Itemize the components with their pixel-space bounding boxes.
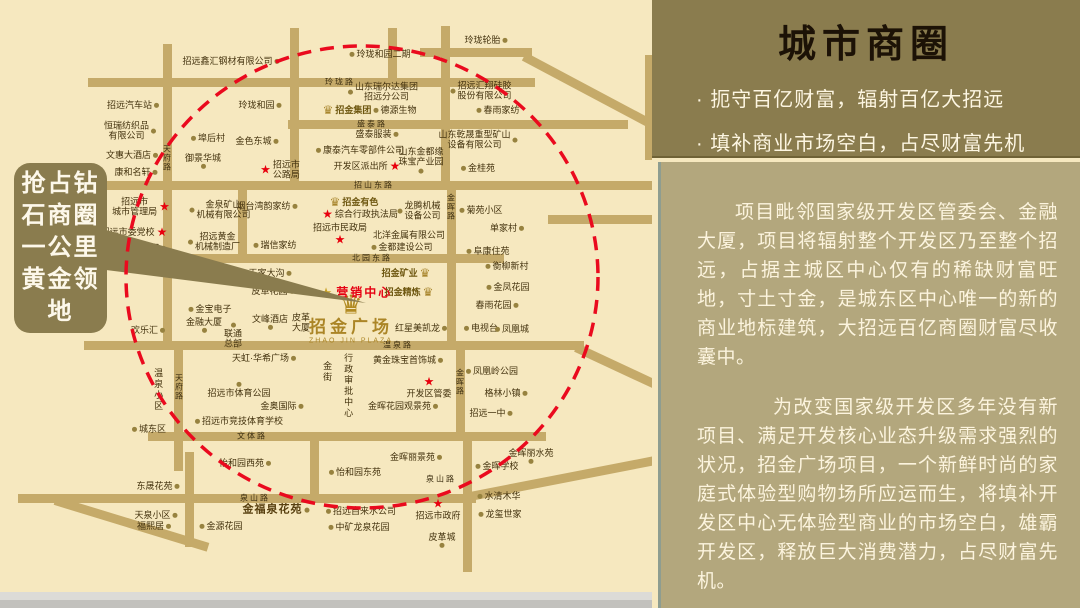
map-poi: 德源生物 (373, 105, 416, 115)
map-poi: 御景华城 (185, 153, 221, 169)
poi-dot-icon (519, 226, 524, 231)
map-poi-label: 招远市民政局 (313, 222, 367, 232)
map-poi: 金福泉花苑 (243, 504, 310, 517)
map-poi-label: 金桂苑 (468, 163, 495, 173)
map-road (574, 343, 652, 404)
map-poi-label: 招远市委党校 (101, 227, 155, 237)
map-poi: 水清木华 (477, 491, 520, 501)
red-star-icon: ★ (260, 164, 271, 176)
body-paragraph-1: 项目毗邻国家级开发区管委会、金融大厦，项目将辐射整个开发区乃至整个招远，占据主城… (697, 198, 1058, 372)
map-road (92, 254, 504, 263)
map-poi: 招远汇翔硅胶 股份有限公司 (450, 81, 511, 102)
map-poi-label: 招远市竞技体育学校 (202, 416, 283, 426)
map-poi-label: 招金有色 (342, 197, 378, 207)
map-poi-label: 康和名轩 (114, 167, 150, 177)
map-poi-label: 金源花园 (206, 521, 242, 531)
map-poi-label: 招远一中 (469, 408, 505, 418)
poi-dot-icon (153, 170, 158, 175)
map-poi: 山东乾晟重型矿山 设备有限公司 (438, 130, 517, 151)
map-poi-label: 龙腾机械 设备公司 (404, 201, 440, 222)
map-poi-label: 招远市 公路局 (273, 160, 300, 181)
map-poi: 金源花园 (199, 521, 242, 531)
map-poi-label: 康泰汽车零部件公司 (323, 145, 404, 155)
map-poi-label: 山东瑞尔达集团 招远分公司 (355, 82, 418, 103)
map-poi: 黄金珠宝首饰城 (373, 355, 443, 365)
map-poi-label: 电视台 (471, 323, 498, 333)
map-poi-label: 山东金都缘 珠宝产业园 (398, 147, 443, 168)
map-poi: 盛泰服装 (355, 129, 398, 139)
map-poi: 招金矿业♛ (382, 267, 431, 279)
map-poi-label: 衡柳新村 (492, 261, 528, 271)
poi-dot-icon (151, 129, 156, 134)
plaza-name: 招金广场 (309, 318, 393, 338)
road-name-label: 泉山路 (426, 474, 456, 485)
map-poi-label: 恒瑞纺织品 有限公司 (104, 121, 149, 142)
map-poi: 联通 总部 (224, 323, 242, 350)
map-poi-label: 皮革 大厦 (292, 313, 310, 334)
marketing-center-badge: ★ 营销中心 (320, 284, 393, 301)
poi-dot-icon (299, 404, 304, 409)
poi-dot-icon (230, 323, 235, 328)
road-name-label: 文体路 (237, 431, 267, 442)
map-poi-label: 王家大沟 (248, 268, 284, 278)
poi-dot-icon (267, 325, 272, 330)
map-poi: 城东区 (132, 424, 166, 434)
poi-dot-icon (495, 327, 500, 332)
map-poi: 招远市民政局★ (313, 222, 367, 245)
poi-dot-icon (508, 411, 513, 416)
map-poi-label: 格林小镇 (484, 388, 520, 398)
eagle-icon: ♛ (423, 286, 434, 298)
map-poi-label: 招远汽车站 (107, 100, 152, 110)
poi-dot-icon (459, 208, 464, 213)
map-poi-label: 埠后村 (198, 133, 225, 143)
map-poi-label: 阜康住苑 (473, 246, 509, 256)
poi-dot-icon (291, 356, 296, 361)
map-poi-label: 招远自来水公司 (333, 506, 396, 516)
poi-dot-icon (287, 271, 292, 276)
poi-dot-icon (503, 38, 508, 43)
map-poi: 金凤花园 (486, 282, 529, 292)
map-poi-label: 综合行政执法局 (335, 209, 398, 219)
map-poi: 玲珑和园 (238, 100, 281, 110)
callout-text: 抢占钻石商圈一公里黄金领地 (20, 168, 101, 328)
map-poi: 烟台湾韵家纺 (236, 201, 297, 211)
bullet-item-2: · 填补商业市场空白，占尽财富先机 (696, 127, 1080, 156)
map-poi-label: 天泉小区 (134, 510, 170, 520)
poi-dot-icon (523, 391, 528, 396)
map-poi: 怡和园西苑 (219, 458, 271, 468)
map-poi: 招远市竞技体育学校 (195, 416, 283, 426)
map-poi: 中矿龙泉花园 (328, 522, 389, 532)
poi-dot-icon (486, 285, 491, 290)
map-poi: ★综合行政执法局 (322, 208, 398, 220)
map-poi: 春雨家纺 (476, 105, 519, 115)
poi-dot-icon (394, 132, 399, 137)
poi-dot-icon (437, 455, 442, 460)
poi-dot-icon (166, 524, 171, 529)
map-poi-label: 欢乐汇 (131, 325, 158, 335)
map-poi: 御金府 (189, 266, 223, 276)
map-road (288, 120, 628, 129)
map-poi: 金色东城 (235, 136, 278, 146)
poi-dot-icon (200, 164, 205, 169)
map-poi-label: 金奥国际 (260, 401, 296, 411)
eagle-icon: ♛ (420, 267, 431, 279)
poi-dot-icon (466, 369, 471, 374)
map-poi-label: 御金都 (132, 243, 159, 253)
map-poi: 金街 (322, 361, 332, 383)
poi-dot-icon (439, 543, 444, 548)
map-poi: 北洋金属有限公司 (373, 230, 445, 240)
map-poi-label: 招远鑫汇钢材有限公司 (182, 56, 272, 66)
poi-dot-icon (397, 209, 402, 214)
map-poi-label: 水清木华 (484, 491, 520, 501)
poi-dot-icon (253, 243, 258, 248)
map-poi: 凤凰城 (495, 324, 529, 334)
map-poi: 金奥国际 (260, 401, 303, 411)
map-poi: 天泉小区 (134, 510, 177, 520)
red-star-icon: ★ (157, 226, 168, 238)
poi-dot-icon (277, 103, 282, 108)
map-poi-label: 文峰酒店 (252, 314, 288, 324)
map-poi-label: 招金集团 (335, 105, 371, 115)
map-poi-label: 玲珑和园 (238, 100, 274, 110)
panel-header: 城市商圈 · 扼守百亿财富，辐射百亿大招远 · 填补商业市场空白，占尽财富先机 (652, 0, 1080, 158)
map-poi: 天虹·华希广场 (232, 353, 296, 363)
map-poi: 招远市体育公园 (207, 382, 270, 398)
road-name-label: 金晖路 (455, 369, 466, 396)
poi-dot-icon (329, 470, 334, 475)
panel-body: 项目毗邻国家级开发区管委会、金融大厦，项目将辐射整个开发区乃至整个招远，占据主城… (658, 162, 1080, 608)
map-poi-label: 招远汇翔硅胶 股份有限公司 (457, 81, 511, 102)
map-poi-label: 盛泰服装 (355, 129, 391, 139)
map-poi-label: 金宝电子 (195, 304, 231, 314)
road-name-label: 北园东路 (352, 253, 392, 264)
map-poi: ♛招金集团 (323, 104, 372, 116)
map-poi-label: 招远市体育公园 (207, 388, 270, 398)
map-poi-label: 招远市政府 (415, 510, 460, 520)
red-star-icon: ★ (424, 375, 435, 387)
eagle-icon: ♛ (323, 104, 334, 116)
red-star-icon: ★ (390, 160, 401, 172)
map-poi: 春雨花园 (475, 300, 518, 310)
map-poi: 康和名轩 (114, 167, 157, 177)
map-poi-label: 凤凰城 (502, 324, 529, 334)
map-poi: 金晖花园观景苑 (368, 401, 438, 411)
poi-dot-icon (461, 166, 466, 171)
map-poi: 招远一中 (469, 408, 512, 418)
map-poi-label: 红星美凯龙 (395, 323, 440, 333)
map-poi: 康泰汽车零部件公司 (316, 145, 404, 155)
map-road (174, 341, 183, 471)
map-poi-label: 文惠大酒店 (106, 150, 151, 160)
poi-dot-icon (418, 168, 423, 173)
map-poi-label: 皮革花园 (251, 286, 287, 296)
poi-dot-icon (189, 208, 194, 213)
map-poi-label: 行政审批中心 (343, 353, 353, 419)
map-road (645, 55, 652, 160)
red-star-icon: ★ (159, 201, 170, 213)
map-poi-label: 联通 总部 (224, 329, 242, 350)
map-poi-label: 招远市 城市管理局 (112, 197, 157, 218)
map-poi-label: 北洋金属有限公司 (373, 230, 445, 240)
poi-dot-icon (450, 89, 455, 94)
map-poi: 皮革 大厦 (292, 313, 310, 334)
bottom-strip-dark (0, 600, 652, 608)
map-poi: 龙腾机械 设备公司 (397, 201, 440, 222)
map-poi: 行政审批中心 (343, 353, 353, 419)
map-poi: 埠后村 (191, 133, 225, 143)
road-name-label: 泉山路 (240, 493, 270, 504)
poi-dot-icon (485, 264, 490, 269)
map-poi-label: 瑞信家纺 (260, 240, 296, 250)
map-poi: 瑞信家纺 (253, 240, 296, 250)
poi-dot-icon (274, 139, 279, 144)
poi-dot-icon (153, 153, 158, 158)
map-road (548, 215, 652, 224)
map-poi: ♛招金有色 (330, 196, 379, 208)
map-poi-label: 德源生物 (380, 105, 416, 115)
slide: ♛ 招金广场 ZHAO JIN PLAZA ★ 营销中心 玲珑路盛泰路招山东路北… (0, 0, 1080, 608)
poi-dot-icon (477, 494, 482, 499)
road-name-label: 天府路 (174, 374, 185, 401)
map-poi: 欢乐汇 (131, 325, 165, 335)
poi-dot-icon (348, 90, 353, 95)
poi-dot-icon (476, 108, 481, 113)
map-poi: 招远汽车站 (107, 100, 159, 110)
map-poi-label: 黄金珠宝首饰城 (373, 355, 436, 365)
map-poi-label: 春雨花园 (475, 300, 511, 310)
road-name-label: 金晖路 (446, 194, 457, 221)
poi-dot-icon (191, 136, 196, 141)
map-poi: 怡和园东苑 (329, 467, 381, 477)
map-poi-label: 金晖花园观景苑 (368, 401, 431, 411)
map-poi: 温泉小区 (153, 368, 163, 412)
map-poi-label: 凤凰岭公园 (473, 366, 518, 376)
red-star-icon: ★ (433, 497, 444, 509)
callout-bubble: 抢占钻石商圈一公里黄金领地 (14, 163, 107, 333)
map-poi: 金晖丽景苑 (390, 452, 442, 462)
map-poi: 招远黄金 机械制造厂 (188, 232, 240, 253)
road-name-label: 招山东路 (354, 180, 394, 191)
map-poi-label: 玲珑和园二期 (356, 49, 410, 59)
map-poi-label: 金融大厦 (186, 317, 222, 327)
map-poi: 王家大沟 (248, 268, 291, 278)
poi-dot-icon (305, 507, 310, 512)
poi-dot-icon (349, 52, 354, 57)
map-poi-label: 福熙居 (137, 521, 164, 531)
poi-dot-icon (466, 249, 471, 254)
poi-dot-icon (175, 484, 180, 489)
map-poi: 招远自来水公司 (326, 506, 396, 516)
map-poi-label: 金凤花园 (493, 282, 529, 292)
map-poi-label: 山东乾晟重型矿山 设备有限公司 (438, 130, 510, 151)
poi-dot-icon (293, 204, 298, 209)
map-poi-label: 金晖丽景苑 (390, 452, 435, 462)
poi-dot-icon (438, 358, 443, 363)
map-poi: 文惠大酒店 (106, 150, 158, 160)
red-star-icon: ★ (335, 234, 346, 246)
map-poi: 福熙居 (137, 521, 171, 531)
poi-dot-icon (464, 326, 469, 331)
map-poi: 凤凰岭公园 (466, 366, 518, 376)
poi-dot-icon (442, 326, 447, 331)
map-poi-label: 御金府 (196, 266, 223, 276)
map-poi: 玲珑轮胎 (464, 35, 507, 45)
map-poi: ★招远市 公路局 (260, 160, 300, 181)
map-poi-label: 金都建设公司 (378, 242, 432, 252)
map-road (148, 432, 546, 441)
map-poi: 招远市委党校★ (101, 226, 168, 238)
poi-dot-icon (373, 108, 378, 113)
poi-dot-icon (433, 404, 438, 409)
map-poi: ★开发区管委 (406, 375, 451, 398)
map-poi: 金融大厦 (186, 317, 222, 333)
map-poi: 招远鑫汇钢材有限公司 (182, 56, 279, 66)
map-poi-label: 金街 (322, 361, 332, 383)
map-poi: 阜康住苑 (466, 246, 509, 256)
map-poi-label: 玲珑轮胎 (464, 35, 500, 45)
marketing-center-label: 营销中心 (336, 284, 392, 301)
body-paragraph-2: 为改变国家级开发区多年没有新项目、满足开发核心业态升级需求强烈的状况，招金广场项… (697, 393, 1058, 596)
poi-dot-icon (173, 513, 178, 518)
map-poi: 文峰酒店 (252, 314, 288, 330)
map-road (420, 48, 532, 57)
poi-dot-icon (132, 427, 137, 432)
map-road (463, 432, 472, 572)
map-poi-label: 怡和园西苑 (219, 458, 264, 468)
map-road (163, 44, 172, 346)
map-poi-label: 怡和园东苑 (336, 467, 381, 477)
map-poi-label: 烟台湾韵家纺 (236, 201, 290, 211)
map-poi: 玲珑和园二期 (349, 49, 410, 59)
poi-dot-icon (290, 289, 295, 294)
map-poi: 皮革花园 (251, 286, 294, 296)
map-poi-label: 城东区 (139, 424, 166, 434)
bottom-strip-light (0, 592, 652, 600)
poi-dot-icon (528, 459, 533, 464)
poi-dot-icon (514, 303, 519, 308)
road-name-label: 天府路 (162, 145, 173, 172)
map-poi-label: 菊苑小区 (466, 205, 502, 215)
poi-dot-icon (195, 419, 200, 424)
map-poi-label: 温泉小区 (153, 368, 163, 412)
map-poi-label: 春雨家纺 (483, 105, 519, 115)
poi-dot-icon (513, 138, 518, 143)
poi-dot-icon (154, 103, 159, 108)
map-poi: 菊苑小区 (459, 205, 502, 215)
poi-dot-icon (275, 59, 280, 64)
map-poi: 格林小镇 (484, 388, 527, 398)
poi-dot-icon (316, 148, 321, 153)
map-poi-label: 龙玺世家 (485, 509, 521, 519)
map-poi: 衡柳新村 (485, 261, 528, 271)
map-poi: 单家村 (490, 223, 524, 233)
map-poi-label: 招远黄金 机械制造厂 (195, 232, 240, 253)
poi-dot-icon (188, 307, 193, 312)
map-poi-label: 皮革城 (428, 532, 455, 542)
poi-dot-icon (478, 512, 483, 517)
bullet-item-1: · 扼守百亿财富，辐射百亿大招远 (696, 83, 1080, 112)
poi-dot-icon (328, 525, 333, 530)
poi-dot-icon (189, 269, 194, 274)
map-poi-label: 招金矿业 (382, 268, 418, 278)
map-poi: 金桂苑 (461, 163, 495, 173)
map-poi-label: 开发区管委 (406, 388, 451, 398)
poi-dot-icon (326, 509, 331, 514)
map-poi: 招远市 城市管理局★ (112, 197, 170, 218)
poi-dot-icon (199, 524, 204, 529)
poi-dot-icon (266, 461, 271, 466)
map-poi-label: 东晟花苑 (136, 481, 172, 491)
map-poi: 红星美凯龙 (395, 323, 447, 333)
poi-dot-icon (236, 382, 241, 387)
poi-dot-icon (160, 328, 165, 333)
map-poi-label: 中矿龙泉花园 (335, 522, 389, 532)
poi-dot-icon (371, 245, 376, 250)
map-poi: 皮革城 (428, 532, 455, 548)
map-poi: ★招远市政府 (415, 497, 460, 520)
poi-dot-icon (161, 246, 166, 251)
map-poi: 电视台 (464, 323, 498, 333)
poi-dot-icon (188, 240, 193, 245)
map-poi: 金都建设公司 (371, 242, 432, 252)
page-title: 城市商圈 (652, 13, 1080, 68)
map-poi-label: 天虹·华希广场 (232, 353, 289, 363)
map-poi: 龙玺世家 (478, 509, 521, 519)
gold-star-icon: ★ (320, 285, 333, 299)
map-poi-label: 金福泉花苑 (243, 504, 303, 517)
poi-dot-icon (201, 328, 206, 333)
map-road (185, 452, 194, 547)
map-poi: 恒瑞纺织品 有限公司 (104, 121, 156, 142)
map-poi-label: 金晖丽水苑 (508, 448, 553, 458)
map-poi: 御金都 (132, 243, 166, 253)
plaza-latin: ZHAO JIN PLAZA (309, 337, 393, 344)
map-poi: 开发区派出所★ (334, 160, 401, 172)
map-poi: 金宝电子 (188, 304, 231, 314)
map-poi-label: 开发区派出所 (334, 161, 388, 171)
map-poi-label: 御景华城 (185, 153, 221, 163)
map-road (310, 432, 319, 500)
map-poi: 金晖丽水苑 (508, 448, 553, 464)
poi-dot-icon (475, 464, 480, 469)
map-poi-label: 金色东城 (235, 136, 271, 146)
map-poi-label: 单家村 (490, 223, 517, 233)
map-poi: 山东瑞尔达集团 招远分公司 (348, 82, 418, 103)
red-star-icon: ★ (322, 208, 333, 220)
map-poi: 东晟花苑 (136, 481, 179, 491)
map-poi: 山东金都缘 珠宝产业园 (398, 147, 443, 174)
